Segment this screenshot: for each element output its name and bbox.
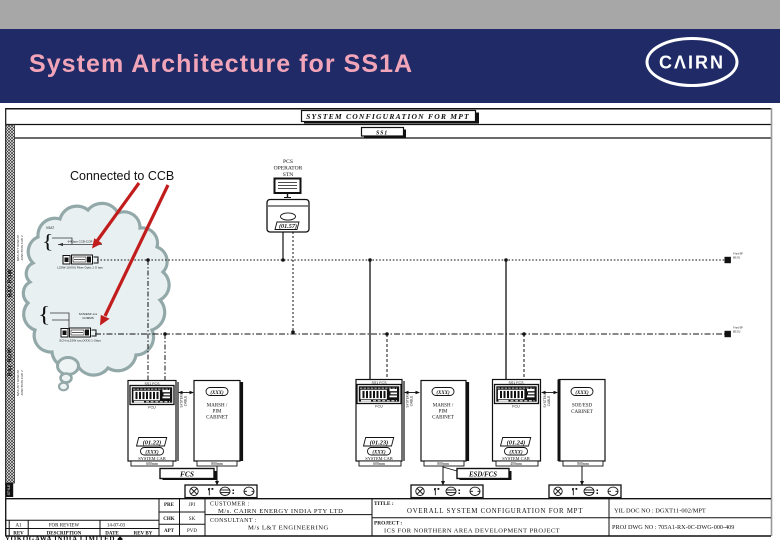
svg-text:L2SW-1(XXX) Fiber Optic 1 G bp: L2SW-1(XXX) Fiber Optic 1 G bps	[57, 266, 103, 270]
svg-text:ESD/FCS: ESD/FCS	[468, 472, 497, 479]
svg-text:PIM: PIM	[439, 410, 448, 415]
svg-text:(01.23): (01.23)	[370, 439, 389, 446]
svg-text:STN: STN	[283, 172, 294, 178]
svg-text:JUNCTION CAB 2: JUNCTION CAB 2	[20, 235, 24, 261]
svg-text:YIL DOC NO : DGXT11-002/MPT: YIL DOC NO : DGXT11-002/MPT	[614, 508, 706, 515]
svg-text:CABLE: CABLE	[410, 396, 414, 406]
svg-text:(XXX): (XXX)	[436, 391, 450, 396]
svg-text:SYSTEM CONFIGURATION FOR MP: SYSTEM CONFIGURATION FOR MPT	[306, 112, 470, 121]
svg-text:FCU: FCU	[375, 405, 383, 409]
svg-text:STYLE: STYLE	[7, 484, 11, 495]
svg-text:600mm: 600mm	[146, 462, 158, 466]
svg-text:SYSTEM CAB: SYSTEM CAB	[365, 456, 393, 461]
svg-text:(01.24): (01.24)	[507, 439, 526, 446]
svg-text:(01.57): (01.57)	[279, 223, 297, 230]
svg-text:JPJ: JPJ	[189, 503, 196, 508]
svg-text:FCU: FCU	[512, 405, 520, 409]
svg-text:MARSH /: MARSH /	[207, 404, 228, 409]
svg-text:SK: SK	[189, 517, 196, 522]
svg-text:VSAT: VSAT	[46, 226, 54, 230]
svg-text:SOE/ESD: SOE/ESD	[572, 404, 593, 409]
svg-text:YOKOGAWA INDIA LIMITED ◆: YOKOGAWA INDIA LIMITED ◆	[5, 535, 123, 540]
svg-text:400mm: 400mm	[510, 462, 522, 466]
svg-text:800mm: 800mm	[437, 462, 449, 466]
svg-text:JUNCTION CAB 2: JUNCTION CAB 2	[20, 370, 24, 396]
svg-text:COMMS: COMMS	[82, 316, 94, 320]
svg-text:M/s. CAIRN ENERGY INDIA PT: M/s. CAIRN ENERGY INDIA PTY LTD	[218, 508, 343, 515]
svg-text:PVD: PVD	[187, 529, 197, 534]
svg-text:M/s L&T ENGINEERING: M/s L&T ENGINEERING	[248, 525, 329, 532]
svg-text:BAY ROW: BAY ROW	[8, 347, 14, 376]
svg-text:CUSTOMER :: CUSTOMER :	[210, 502, 250, 508]
svg-text:PRE: PRE	[164, 503, 175, 508]
svg-text:800mm: 800mm	[211, 462, 223, 466]
svg-text:CABINET: CABINET	[432, 416, 454, 421]
svg-text:MARSH /: MARSH /	[433, 404, 454, 409]
svg-text:SYSTEM CAB: SYSTEM CAB	[138, 456, 166, 461]
svg-text:CABINET: CABINET	[206, 416, 228, 421]
svg-text:A1: A1	[15, 524, 22, 529]
svg-text:REV BY: REV BY	[134, 532, 153, 537]
svg-text:CONSULTANT :: CONSULTANT :	[210, 518, 257, 524]
svg-text:APT: APT	[164, 529, 175, 534]
svg-text:{: {	[38, 303, 50, 327]
svg-text:CABINET: CABINET	[571, 410, 593, 415]
svg-text:PROJ DWG NO : 705A1-RX-0C-DWG-: PROJ DWG NO : 705A1-RX-0C-DWG-000-409	[612, 524, 734, 531]
svg-text:FOR REVIEW: FOR REVIEW	[49, 524, 80, 529]
svg-text:OVERALL SYSTEM CONFIGURATION: OVERALL SYSTEM CONFIGURATION FOR MPT	[407, 508, 583, 515]
svg-text:PCS: PCS	[283, 159, 293, 165]
svg-text:CABLE: CABLE	[184, 396, 188, 406]
svg-text:SCN-xL2SW xxx,(XXX) 1 Gbps: SCN-xL2SW xxx,(XXX) 1 Gbps	[59, 339, 101, 343]
svg-text:14-07-03: 14-07-03	[107, 524, 126, 529]
svg-text:TITLE :: TITLE :	[374, 501, 394, 507]
svg-text:(01.22): (01.22)	[143, 439, 162, 446]
svg-text:BUS1: BUS1	[733, 256, 741, 260]
svg-text:PROJECT :: PROJECT :	[374, 521, 402, 527]
svg-text:OPERATOR: OPERATOR	[274, 166, 303, 172]
svg-text:SYSTEM CAB: SYSTEM CAB	[502, 456, 530, 461]
svg-text:CHK: CHK	[163, 517, 175, 522]
svg-text:(XXX): (XXX)	[575, 391, 589, 396]
svg-text:800mm: 800mm	[577, 462, 589, 466]
svg-text:(XXX): (XXX)	[145, 451, 159, 456]
svg-text:(XXX): (XXX)	[509, 451, 523, 456]
svg-text:FCU: FCU	[148, 406, 156, 410]
svg-text:ICS FOR NORTHERN AREA DEVE: ICS FOR NORTHERN AREA DEVELOPMENT PROJEC…	[384, 528, 560, 535]
svg-text:600mm: 600mm	[373, 462, 385, 466]
svg-text:SS1: SS1	[376, 130, 388, 136]
svg-text:64Kbps CCB-CCR: 64Kbps CCB-CCR	[68, 240, 94, 244]
svg-text:(XXX): (XXX)	[372, 451, 386, 456]
svg-text:BAY ROW: BAY ROW	[8, 268, 14, 297]
svg-text:BUS2: BUS2	[733, 330, 741, 334]
svg-text:Connected to CCB: Connected to CCB	[70, 169, 174, 183]
svg-text:(XXX): (XXX)	[210, 391, 224, 396]
svg-text:CABLE: CABLE	[547, 396, 551, 406]
svg-text:{: {	[42, 230, 54, 253]
svg-text:PIM: PIM	[213, 410, 222, 415]
svg-text:FCS: FCS	[180, 470, 194, 479]
